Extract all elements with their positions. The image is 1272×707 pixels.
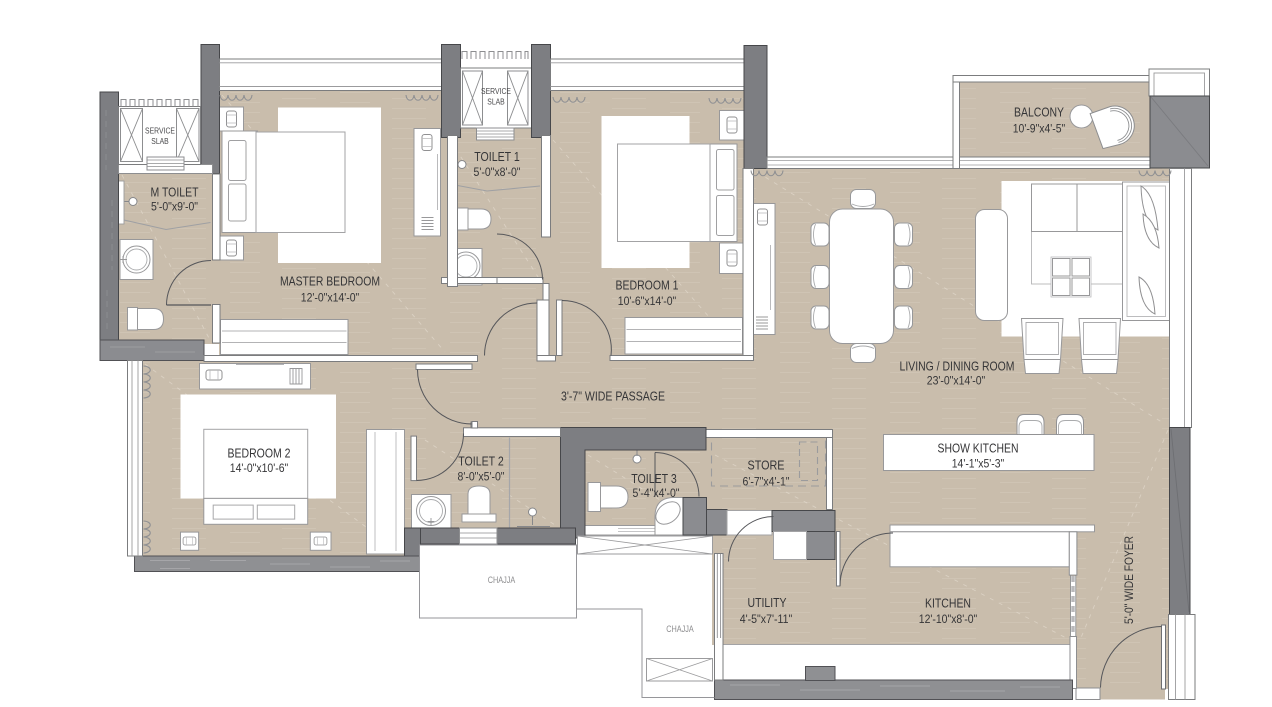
svg-text:12'-10"x8'-0": 12'-10"x8'-0" [919,612,978,626]
svg-text:CHAJJA: CHAJJA [666,624,694,635]
svg-text:TOILET 1: TOILET 1 [474,150,520,164]
svg-text:8'-0"x5'-0": 8'-0"x5'-0" [458,470,505,484]
svg-text:MASTER BEDROOM: MASTER BEDROOM [280,275,380,289]
svg-text:5'-0"x8'-0": 5'-0"x8'-0" [474,165,521,179]
svg-text:BALCONY: BALCONY [1014,106,1064,120]
svg-text:TOILET 2: TOILET 2 [458,455,504,469]
svg-text:10'-6"x14'-0": 10'-6"x14'-0" [618,294,677,308]
svg-text:SERVICE: SERVICE [481,86,511,96]
svg-text:CHAJJA: CHAJJA [488,575,516,586]
svg-text:TOILET 3: TOILET 3 [631,472,677,486]
svg-text:3'-7" WIDE PASSAGE: 3'-7" WIDE PASSAGE [561,390,665,404]
svg-text:23'-0"x14'-0": 23'-0"x14'-0" [927,374,986,388]
svg-text:BEDROOM 1: BEDROOM 1 [616,279,679,293]
svg-text:UTILITY: UTILITY [748,596,787,610]
svg-text:SLAB: SLAB [487,97,505,107]
svg-text:M TOILET: M TOILET [151,186,199,200]
svg-text:STORE: STORE [748,459,785,473]
svg-text:5'-4"x4'-0": 5'-4"x4'-0" [633,486,680,500]
svg-text:14'-1"x5'-3": 14'-1"x5'-3" [952,457,1005,471]
svg-text:12'-0"x14'-0": 12'-0"x14'-0" [301,291,360,305]
svg-text:LIVING / DINING ROOM: LIVING / DINING ROOM [900,360,1015,374]
svg-text:SHOW KITCHEN: SHOW KITCHEN [938,442,1019,456]
svg-text:BEDROOM 2: BEDROOM 2 [228,447,291,461]
svg-text:5'-0" WIDE FOYER: 5'-0" WIDE FOYER [1122,536,1136,624]
svg-text:SLAB: SLAB [151,136,169,146]
svg-text:KITCHEN: KITCHEN [925,597,971,611]
svg-text:14'-0"x10'-6": 14'-0"x10'-6" [230,461,289,475]
svg-text:10'-9"x4'-5": 10'-9"x4'-5" [1013,122,1066,136]
svg-text:5'-0"x9'-0": 5'-0"x9'-0" [151,200,198,214]
svg-text:SERVICE: SERVICE [145,126,175,136]
svg-text:6'-7"x4'-1": 6'-7"x4'-1" [743,475,790,489]
svg-text:4'-5"x7'-11": 4'-5"x7'-11" [740,612,793,626]
